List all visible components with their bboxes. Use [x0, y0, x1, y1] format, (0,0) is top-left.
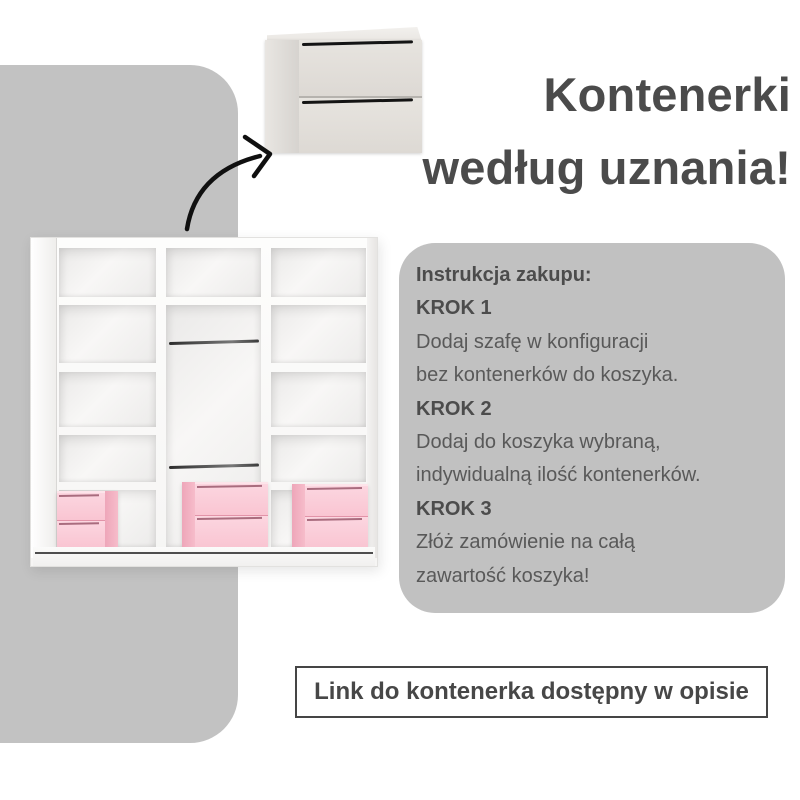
instructions-title: Instrukcja zakupu:: [416, 259, 773, 292]
wardrobe-interior-illustration: [30, 237, 378, 567]
link-note-text: Link do kontenerka dostępny w opisie: [314, 678, 749, 706]
step-1-line-1: Dodaj szafę w konfiguracji: [416, 326, 773, 359]
pink-drawer-handle: [59, 522, 99, 525]
step-3-line-2: zawartość koszyka!: [416, 560, 773, 593]
step-3-line-1: Złóż zamówienie na całą: [416, 526, 773, 559]
wardrobe-shelf-compartment: [271, 372, 366, 427]
container-drawer-bottom: [299, 96, 422, 154]
container-drawer-top: [299, 40, 422, 96]
page-title-line1: Kontenerki: [544, 68, 792, 121]
pink-container-side: [292, 484, 305, 547]
instructions-box: Instrukcja zakupu: KROK 1 Dodaj szafę w …: [399, 243, 785, 613]
pink-container-front: [57, 491, 105, 547]
step-1-label: KROK 1: [416, 292, 773, 325]
wardrobe-cubby: [166, 248, 261, 297]
link-note-box: Link do kontenerka dostępny w opisie: [295, 666, 768, 718]
pink-drawer: [195, 515, 268, 547]
wardrobe-left-panel: [31, 238, 57, 558]
pink-drawer: [57, 520, 105, 548]
wardrobe-cubby: [59, 248, 156, 297]
pink-container-side: [182, 482, 195, 547]
promo-graphic: Kontenerki według uznania!: [0, 0, 800, 800]
drawer-handle-groove: [302, 40, 413, 46]
pink-container-front: [195, 482, 268, 547]
wardrobe-cubby: [271, 248, 366, 297]
pink-drawer-handle: [307, 518, 362, 521]
step-2-line-2: indywidualną ilość kontenerków.: [416, 459, 773, 492]
pink-drawer: [305, 516, 368, 547]
container-body: [265, 40, 422, 153]
wardrobe-right-panel: [367, 238, 377, 558]
pink-container: [292, 484, 368, 547]
pink-drawer: [57, 493, 105, 520]
step-1-line-2: bez kontenerków do koszyka.: [416, 359, 773, 392]
pink-container-front: [305, 484, 368, 547]
wardrobe-shelf-compartment: [59, 305, 156, 363]
curved-arrow-icon: [168, 128, 280, 240]
container-front-face: [299, 40, 422, 153]
page-title-line2: według uznania!: [422, 141, 791, 194]
pink-container: [182, 482, 268, 547]
page-title: Kontenerki według uznania!: [422, 58, 791, 204]
pink-drawer-handle: [197, 485, 262, 488]
step-2-label: KROK 2: [416, 393, 773, 426]
two-drawer-container-illustration: [265, 27, 422, 153]
pink-drawer-handle: [197, 517, 262, 520]
pink-drawer: [305, 486, 368, 516]
wardrobe-shelf-compartment: [59, 372, 156, 427]
pink-drawer-handle: [307, 487, 362, 490]
wardrobe-plinth: [33, 547, 375, 566]
pink-drawer: [195, 484, 268, 515]
step-2-line-1: Dodaj do koszyka wybraną,: [416, 426, 773, 459]
pink-drawer-handle: [59, 494, 99, 497]
drawer-handle-groove: [302, 98, 413, 104]
pink-container-side: [105, 491, 118, 547]
step-3-label: KROK 3: [416, 493, 773, 526]
wardrobe-base-rail: [35, 552, 373, 554]
wardrobe-shelf-compartment: [271, 435, 366, 482]
pink-container: [57, 491, 118, 547]
wardrobe-shelf-compartment: [59, 435, 156, 482]
wardrobe-shelf-compartment: [271, 305, 366, 363]
